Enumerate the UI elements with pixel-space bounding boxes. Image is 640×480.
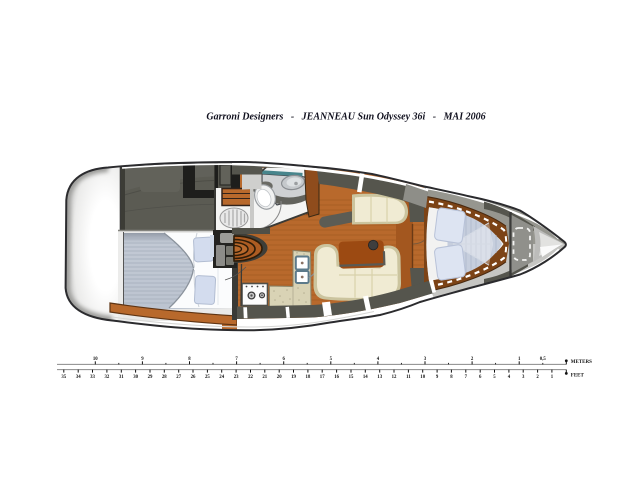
svg-text:28: 28	[162, 375, 167, 380]
svg-text:14: 14	[363, 375, 368, 380]
svg-text:17: 17	[320, 375, 325, 380]
svg-text:29: 29	[148, 375, 153, 380]
svg-text:18: 18	[306, 375, 311, 380]
svg-text:27: 27	[176, 375, 181, 380]
svg-text:24: 24	[219, 375, 224, 380]
svg-text:0,5: 0,5	[540, 357, 547, 362]
svg-text:34: 34	[76, 375, 81, 380]
svg-text:22: 22	[248, 375, 253, 380]
svg-text:20: 20	[277, 375, 282, 380]
svg-text:15: 15	[349, 375, 354, 380]
svg-text:23: 23	[234, 375, 239, 380]
svg-text:25: 25	[205, 375, 210, 380]
svg-text:32: 32	[105, 375, 110, 380]
svg-text:26: 26	[191, 375, 196, 380]
svg-text:FEET: FEET	[571, 373, 585, 378]
svg-text:19: 19	[291, 375, 296, 380]
svg-text:11: 11	[406, 375, 411, 380]
svg-text:METERS: METERS	[571, 360, 592, 365]
svg-text:16: 16	[334, 375, 339, 380]
svg-text:Garroni Designers - JEANNE: Garroni Designers - JEANNEAU Sun Odyssey…	[206, 112, 485, 123]
svg-text:35: 35	[61, 375, 66, 380]
svg-text:12: 12	[392, 375, 397, 380]
svg-text:13: 13	[377, 375, 382, 380]
svg-text:10: 10	[420, 375, 425, 380]
svg-text:31: 31	[119, 375, 124, 380]
svg-text:30: 30	[133, 375, 138, 380]
svg-text:33: 33	[90, 375, 95, 380]
svg-text:21: 21	[262, 375, 267, 380]
svg-text:10: 10	[93, 357, 98, 362]
